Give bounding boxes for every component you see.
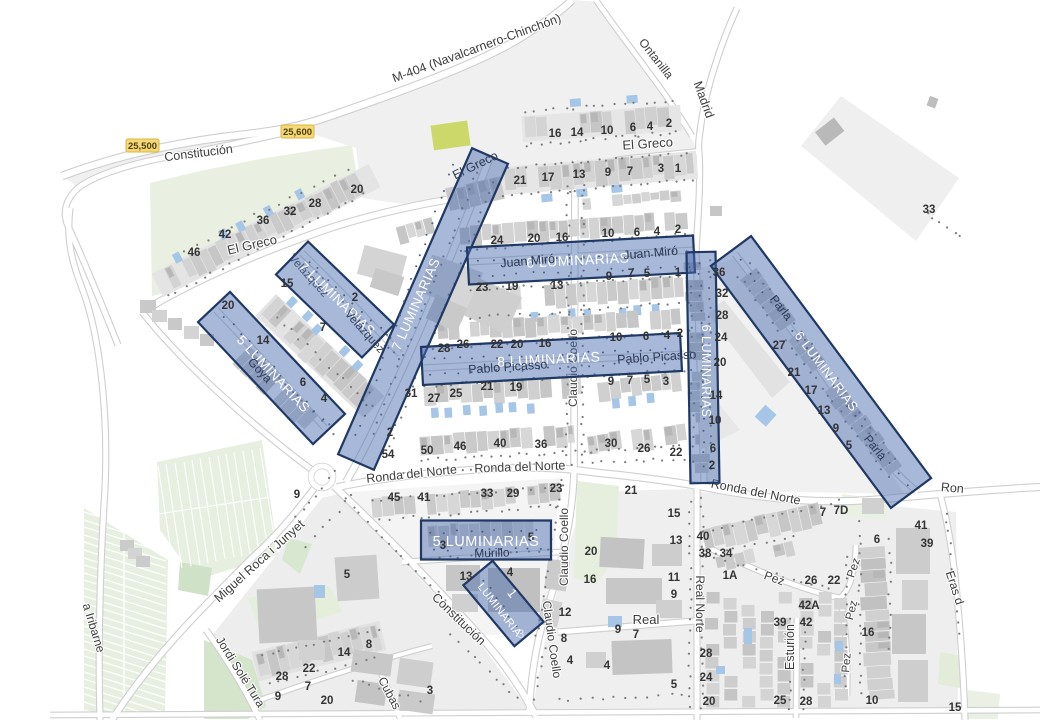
svg-text:6: 6 bbox=[710, 443, 716, 455]
svg-text:42: 42 bbox=[800, 617, 813, 629]
svg-text:20: 20 bbox=[321, 695, 334, 707]
svg-text:23: 23 bbox=[476, 282, 489, 294]
svg-text:40: 40 bbox=[494, 438, 507, 450]
svg-text:Pez: Pez bbox=[840, 652, 853, 673]
svg-text:25,500: 25,500 bbox=[128, 141, 157, 152]
svg-text:9: 9 bbox=[605, 167, 611, 179]
svg-text:25,600: 25,600 bbox=[283, 127, 312, 138]
svg-text:20: 20 bbox=[585, 546, 598, 558]
svg-text:22: 22 bbox=[303, 663, 316, 675]
svg-text:33: 33 bbox=[923, 204, 936, 216]
svg-text:20: 20 bbox=[703, 696, 716, 708]
svg-text:6: 6 bbox=[634, 227, 640, 239]
svg-text:16: 16 bbox=[549, 128, 562, 140]
svg-text:Real: Real bbox=[633, 612, 660, 627]
svg-text:25: 25 bbox=[774, 695, 787, 707]
svg-text:40: 40 bbox=[697, 531, 710, 543]
svg-text:45: 45 bbox=[388, 492, 401, 504]
svg-text:2: 2 bbox=[666, 118, 672, 130]
svg-text:14: 14 bbox=[338, 647, 351, 659]
svg-text:Real Norte: Real Norte bbox=[693, 575, 707, 633]
svg-text:46: 46 bbox=[188, 247, 201, 259]
svg-text:6: 6 bbox=[300, 377, 306, 389]
svg-text:14: 14 bbox=[571, 127, 584, 139]
svg-text:6 LUMINARIAS: 6 LUMINARIAS bbox=[699, 325, 713, 418]
svg-text:1A: 1A bbox=[723, 570, 738, 582]
svg-text:Esturión: Esturión bbox=[783, 624, 797, 670]
svg-text:29: 29 bbox=[507, 488, 520, 500]
svg-text:46: 46 bbox=[454, 441, 467, 453]
svg-text:28: 28 bbox=[438, 343, 451, 355]
svg-text:8: 8 bbox=[366, 639, 373, 651]
svg-text:10: 10 bbox=[866, 695, 879, 707]
svg-text:21: 21 bbox=[481, 381, 494, 393]
svg-text:9: 9 bbox=[671, 589, 677, 601]
svg-text:1: 1 bbox=[675, 267, 682, 279]
svg-text:9: 9 bbox=[608, 376, 614, 388]
svg-text:36: 36 bbox=[713, 267, 726, 279]
svg-text:4: 4 bbox=[604, 660, 611, 672]
svg-text:4: 4 bbox=[647, 121, 654, 133]
svg-text:33: 33 bbox=[481, 488, 494, 500]
svg-text:42A: 42A bbox=[798, 600, 819, 612]
svg-text:24: 24 bbox=[491, 235, 504, 247]
svg-text:15: 15 bbox=[668, 508, 681, 520]
svg-text:9: 9 bbox=[606, 271, 612, 283]
svg-text:23: 23 bbox=[550, 483, 563, 495]
svg-text:Claudio Coello: Claudio Coello bbox=[557, 508, 571, 586]
svg-text:28: 28 bbox=[276, 671, 289, 683]
svg-text:7: 7 bbox=[627, 166, 633, 178]
svg-text:3: 3 bbox=[663, 376, 669, 388]
svg-text:21: 21 bbox=[788, 367, 801, 379]
svg-text:1: 1 bbox=[675, 163, 682, 175]
svg-text:17: 17 bbox=[805, 385, 818, 397]
svg-text:4: 4 bbox=[567, 655, 574, 667]
svg-text:7: 7 bbox=[628, 268, 634, 280]
svg-text:5: 5 bbox=[644, 374, 651, 386]
svg-text:16: 16 bbox=[539, 338, 552, 350]
svg-text:16: 16 bbox=[862, 627, 875, 639]
svg-text:24: 24 bbox=[715, 332, 728, 344]
svg-text:31: 31 bbox=[405, 388, 418, 400]
svg-text:Murillo: Murillo bbox=[474, 545, 510, 560]
svg-text:25: 25 bbox=[450, 388, 463, 400]
svg-text:28: 28 bbox=[716, 310, 729, 322]
svg-text:4: 4 bbox=[321, 393, 328, 405]
svg-text:28: 28 bbox=[700, 648, 713, 660]
svg-text:7D: 7D bbox=[834, 505, 849, 517]
svg-text:10: 10 bbox=[610, 332, 623, 344]
svg-text:5: 5 bbox=[644, 268, 651, 280]
svg-text:22: 22 bbox=[491, 339, 504, 351]
svg-text:6: 6 bbox=[874, 534, 880, 546]
svg-text:8: 8 bbox=[561, 633, 568, 645]
svg-text:14: 14 bbox=[257, 335, 270, 347]
svg-text:27: 27 bbox=[773, 340, 786, 352]
svg-text:27: 27 bbox=[428, 393, 441, 405]
svg-text:10: 10 bbox=[601, 125, 614, 137]
svg-text:30: 30 bbox=[605, 438, 618, 450]
svg-text:20: 20 bbox=[511, 339, 524, 351]
svg-text:28: 28 bbox=[800, 696, 813, 708]
svg-text:38: 38 bbox=[699, 548, 712, 560]
svg-text:42: 42 bbox=[219, 229, 232, 241]
svg-text:7: 7 bbox=[633, 629, 639, 641]
svg-text:26: 26 bbox=[638, 443, 651, 455]
svg-text:Ron: Ron bbox=[940, 480, 964, 496]
svg-text:36: 36 bbox=[257, 215, 270, 227]
svg-text:3: 3 bbox=[658, 163, 664, 175]
svg-text:13: 13 bbox=[818, 405, 831, 417]
svg-text:13: 13 bbox=[551, 280, 564, 292]
svg-text:41: 41 bbox=[418, 492, 431, 504]
svg-text:11: 11 bbox=[668, 572, 681, 584]
svg-text:10: 10 bbox=[602, 228, 615, 240]
svg-text:4: 4 bbox=[654, 226, 661, 238]
svg-text:36: 36 bbox=[535, 439, 548, 451]
svg-text:3: 3 bbox=[427, 685, 433, 697]
svg-text:6: 6 bbox=[630, 122, 636, 134]
svg-text:19: 19 bbox=[510, 382, 523, 394]
svg-text:32: 32 bbox=[284, 206, 297, 218]
svg-text:9: 9 bbox=[833, 423, 839, 435]
svg-text:19: 19 bbox=[506, 281, 519, 293]
svg-text:7: 7 bbox=[627, 375, 633, 387]
svg-text:50: 50 bbox=[421, 445, 434, 457]
svg-text:7: 7 bbox=[320, 322, 326, 334]
svg-text:39: 39 bbox=[774, 617, 787, 629]
svg-text:39: 39 bbox=[921, 538, 934, 550]
svg-text:9: 9 bbox=[294, 489, 300, 501]
svg-text:12: 12 bbox=[559, 607, 572, 619]
svg-text:24: 24 bbox=[700, 672, 713, 684]
svg-text:2: 2 bbox=[675, 224, 681, 236]
svg-text:5: 5 bbox=[344, 569, 351, 581]
svg-text:21: 21 bbox=[625, 485, 638, 497]
svg-text:9: 9 bbox=[275, 691, 281, 703]
svg-text:20: 20 bbox=[351, 184, 364, 196]
svg-text:4: 4 bbox=[664, 330, 671, 342]
svg-text:2: 2 bbox=[677, 328, 683, 340]
svg-text:20: 20 bbox=[714, 357, 727, 369]
svg-text:4: 4 bbox=[507, 567, 514, 579]
svg-text:9: 9 bbox=[615, 624, 621, 636]
svg-text:13: 13 bbox=[670, 535, 683, 547]
svg-text:34: 34 bbox=[720, 548, 733, 560]
svg-text:2: 2 bbox=[387, 427, 393, 439]
svg-text:15: 15 bbox=[949, 702, 962, 714]
svg-text:16: 16 bbox=[584, 574, 597, 586]
svg-text:20: 20 bbox=[222, 300, 235, 312]
svg-text:5: 5 bbox=[671, 679, 678, 691]
svg-text:13: 13 bbox=[573, 169, 586, 181]
svg-text:22: 22 bbox=[670, 447, 683, 459]
svg-text:17: 17 bbox=[542, 172, 555, 184]
svg-text:28: 28 bbox=[309, 198, 322, 210]
svg-text:26: 26 bbox=[457, 339, 470, 351]
svg-text:54: 54 bbox=[382, 449, 395, 461]
svg-text:5: 5 bbox=[846, 440, 853, 452]
svg-text:2: 2 bbox=[709, 460, 715, 472]
svg-text:22: 22 bbox=[828, 575, 841, 587]
svg-text:41: 41 bbox=[915, 520, 928, 532]
svg-text:13: 13 bbox=[460, 571, 473, 583]
svg-text:7: 7 bbox=[820, 507, 826, 519]
svg-text:20: 20 bbox=[528, 233, 541, 245]
svg-text:15: 15 bbox=[281, 278, 294, 290]
svg-text:21: 21 bbox=[514, 175, 527, 187]
svg-text:26: 26 bbox=[805, 575, 818, 587]
svg-text:32: 32 bbox=[716, 288, 729, 300]
svg-text:7: 7 bbox=[305, 681, 311, 693]
svg-text:6: 6 bbox=[643, 331, 649, 343]
svg-text:16: 16 bbox=[556, 232, 569, 244]
